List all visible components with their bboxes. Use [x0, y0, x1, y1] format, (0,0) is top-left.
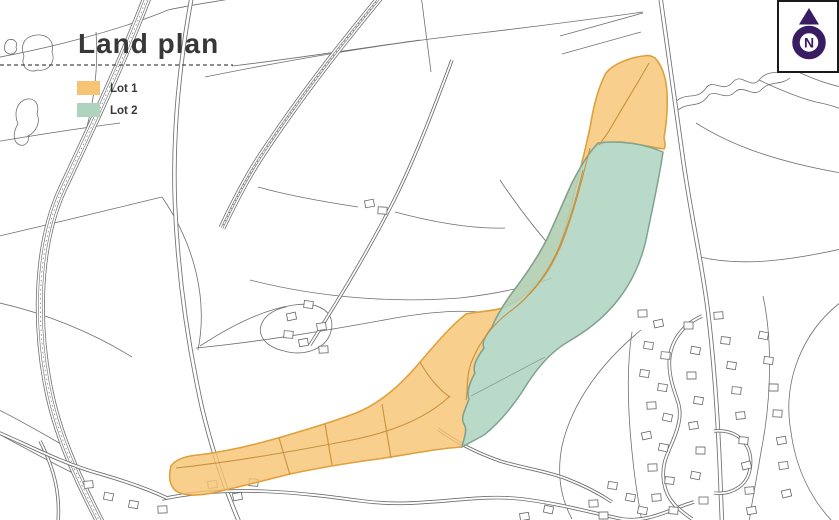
- building: [286, 312, 296, 321]
- field-boundary-line: [258, 187, 358, 207]
- building: [641, 431, 651, 440]
- building: [637, 506, 647, 515]
- building: [687, 372, 696, 379]
- building: [764, 356, 774, 364]
- building: [736, 412, 746, 420]
- building: [232, 492, 242, 500]
- building: [658, 443, 668, 452]
- building: [665, 477, 675, 485]
- railway-line: [40, 0, 148, 520]
- building: [599, 512, 608, 519]
- building: [714, 312, 723, 320]
- title-block: Land plan: [0, 28, 233, 65]
- building: [758, 331, 768, 340]
- field-boundary-line: [749, 296, 770, 520]
- building: [647, 402, 656, 409]
- building: [694, 396, 704, 404]
- land-plan-page: Land plan Lot 1 Lot 2 N: [0, 0, 839, 520]
- building: [644, 341, 654, 349]
- building: [378, 207, 387, 214]
- field-boundary-line: [4, 39, 16, 54]
- building: [769, 384, 778, 391]
- railway-line: [40, 0, 148, 520]
- lot-areas: [170, 56, 668, 495]
- building: [781, 489, 791, 498]
- building: [779, 461, 789, 469]
- north-letter: N: [804, 35, 814, 51]
- building: [284, 331, 294, 339]
- railway-hatch: [222, 0, 382, 228]
- building: [158, 506, 167, 513]
- building: [684, 322, 693, 329]
- field-boundary-line: [628, 332, 642, 520]
- building: [84, 481, 94, 489]
- building: [638, 310, 647, 317]
- field-boundary-line: [676, 78, 790, 112]
- building: [317, 322, 327, 330]
- field-boundary-line: [205, 12, 643, 77]
- north-indicator: N: [778, 1, 838, 72]
- building: [662, 413, 672, 422]
- building: [669, 507, 678, 515]
- legend-label-lot2: Lot 2: [110, 105, 137, 117]
- road-line: [660, 0, 722, 520]
- building: [364, 199, 374, 208]
- legend-label-lot1: Lot 1: [110, 83, 138, 95]
- building: [727, 361, 737, 369]
- building: [103, 492, 113, 501]
- building: [543, 505, 553, 514]
- railway-line: [40, 0, 148, 520]
- building: [690, 346, 700, 354]
- building: [745, 487, 754, 495]
- field-boundary-line: [696, 123, 839, 173]
- building: [652, 494, 661, 502]
- building: [625, 493, 635, 501]
- field-boundary-line: [395, 212, 505, 228]
- building: [653, 319, 663, 328]
- road-line: [174, 0, 240, 520]
- building: [298, 338, 308, 346]
- railway-line: [222, 0, 382, 228]
- road-line: [174, 0, 240, 520]
- building: [648, 464, 657, 471]
- railway-line: [222, 0, 382, 228]
- building: [739, 437, 748, 445]
- building: [304, 300, 314, 308]
- building: [608, 481, 618, 489]
- building: [520, 512, 530, 520]
- building: [319, 346, 328, 353]
- page-title: Land plan: [78, 28, 219, 59]
- lot2-area: [462, 142, 663, 447]
- building: [732, 387, 742, 395]
- building: [128, 500, 138, 508]
- building: [746, 506, 756, 514]
- building: [696, 447, 705, 454]
- legend-swatch-lot2: [77, 103, 100, 117]
- field-boundary-line: [560, 13, 643, 36]
- field-boundary-line: [700, 249, 839, 262]
- railway-line: [222, 0, 382, 228]
- field-boundary-line: [562, 32, 641, 54]
- field-boundary-line: [0, 123, 120, 142]
- field-boundary-line: [168, 0, 235, 10]
- legend-swatch-lot1: [77, 81, 100, 95]
- railway-line: [222, 0, 382, 228]
- building: [721, 337, 731, 345]
- building: [661, 352, 671, 360]
- road-line: [660, 0, 722, 520]
- field-boundary-line: [0, 197, 162, 237]
- building: [699, 497, 708, 504]
- building: [773, 410, 782, 417]
- field-boundary-line: [0, 302, 132, 357]
- building: [589, 500, 598, 507]
- building: [640, 369, 650, 377]
- building: [776, 436, 786, 444]
- field-boundary-line: [250, 278, 552, 300]
- railway-line: [40, 0, 148, 520]
- railway-hatch: [40, 0, 148, 520]
- building: [658, 383, 668, 391]
- building: [690, 471, 700, 480]
- building: [689, 421, 699, 429]
- field-boundary-line: [789, 302, 839, 520]
- field-boundary-line: [421, 0, 431, 72]
- land-plan-map: Land plan Lot 1 Lot 2 N: [0, 0, 839, 520]
